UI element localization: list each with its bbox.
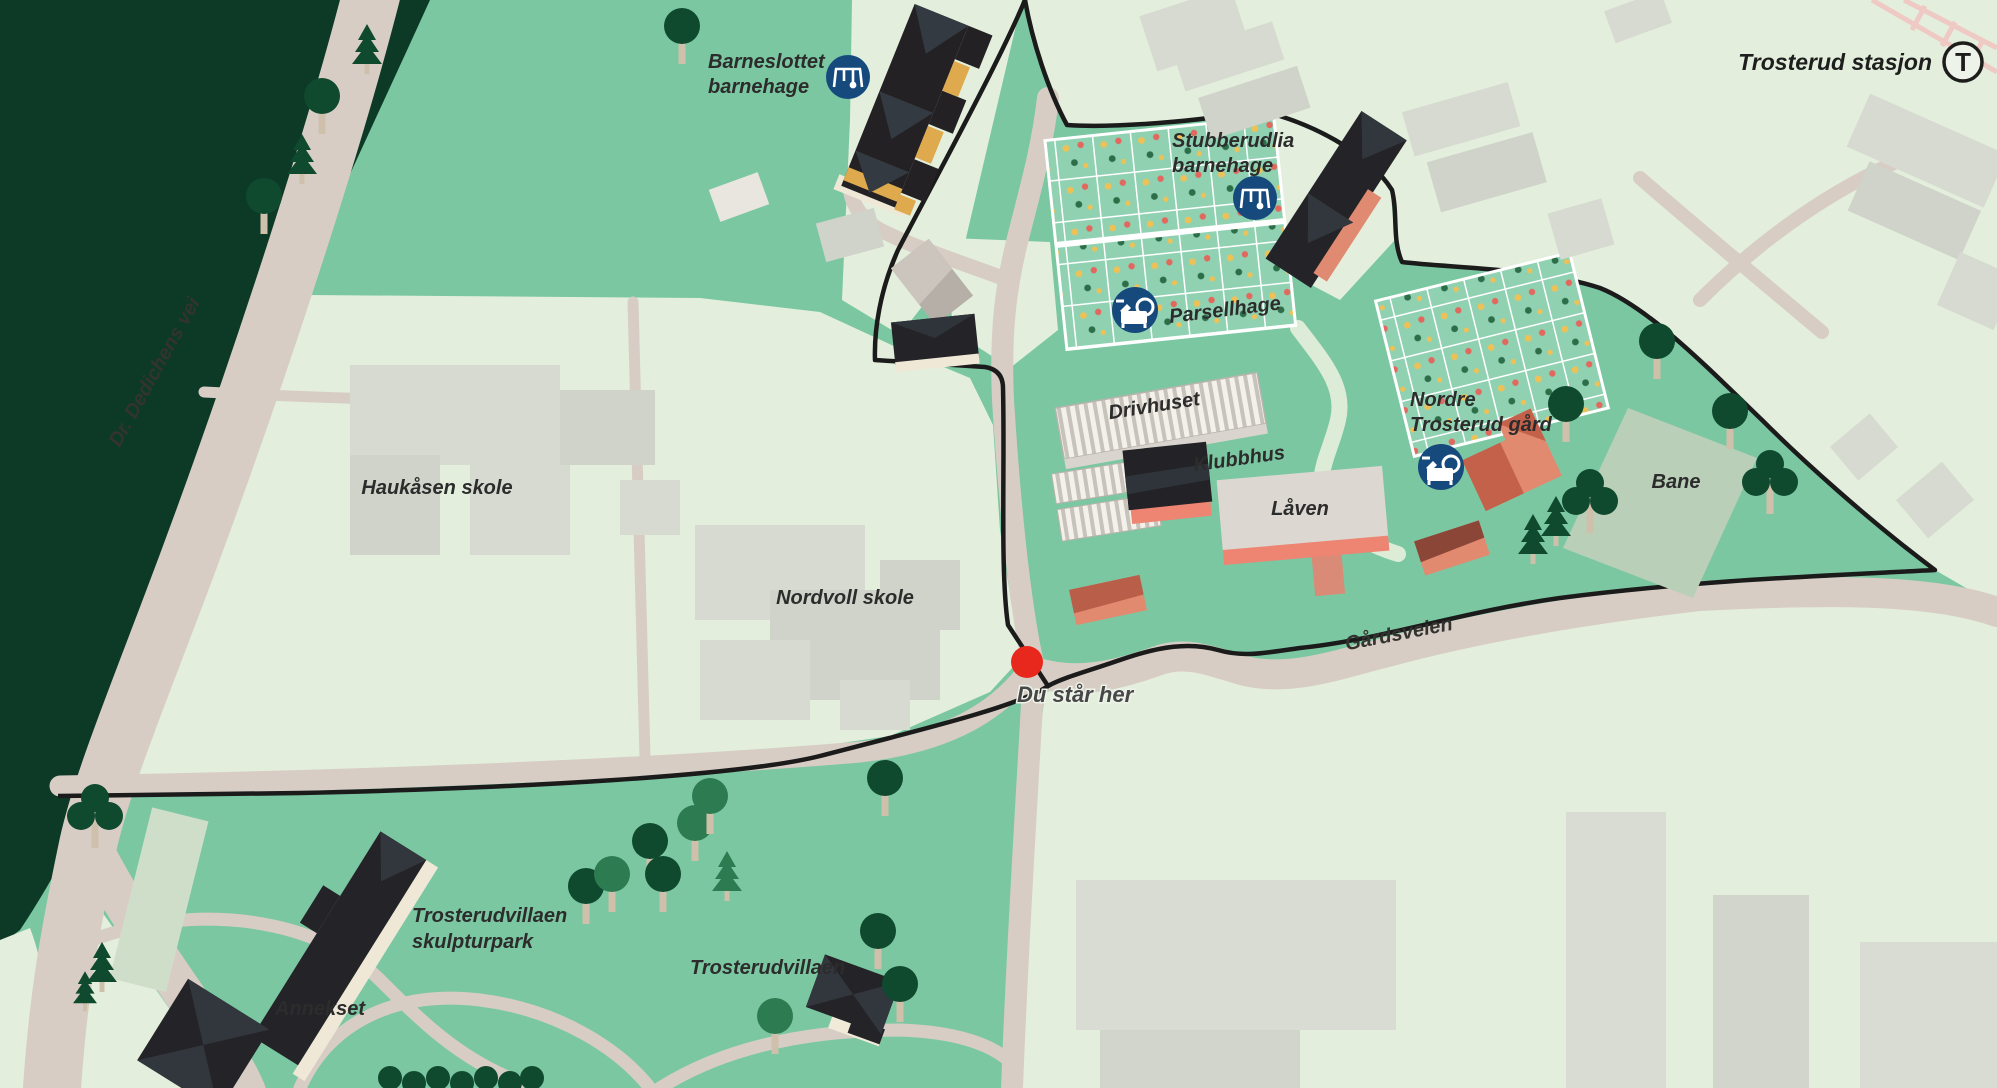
label-nordre-line1: Nordre (1410, 389, 1476, 411)
label-annekset: Annekset (274, 998, 366, 1020)
label-barneslottet-line2: barnehage (708, 76, 809, 98)
metro-T-icon: T (1944, 43, 1982, 81)
label-laaven: Låven (1271, 497, 1329, 520)
label-trosterud-stasjon: Trosterud stasjon (1738, 49, 1932, 75)
label-barneslottet-line1: Barneslottet (708, 51, 826, 73)
building-black-small (891, 314, 980, 373)
you-are-here-dot (1011, 646, 1043, 678)
park-map: T Barneslottet barnehage Trosterud stasj… (0, 0, 1997, 1088)
label-nordvoll-skole: Nordvoll skole (776, 587, 914, 609)
label-stubberudlia-line1: Stubberudlia (1172, 130, 1294, 152)
label-skulpturpark-line1: Trosterudvillaen (412, 905, 567, 927)
label-nordre-line2: Trosterud gård (1410, 413, 1553, 436)
metro-t-letter: T (1955, 47, 1971, 77)
playground-icon (1233, 176, 1277, 220)
label-haukaasen-skole: Haukåsen skole (361, 476, 512, 499)
playground-icon (826, 55, 870, 99)
map-svg: T Barneslottet barnehage Trosterud stasj… (0, 0, 1997, 1088)
watering-can-icon (1112, 287, 1158, 333)
label-du-staar-her: Du står her (1017, 682, 1135, 707)
watering-can-icon (1418, 444, 1464, 490)
label-trosterudvillaen: Trosterudvillaen (690, 957, 845, 979)
label-stubberudlia-line2: barnehage (1172, 155, 1273, 177)
label-skulpturpark-line2: skulpturpark (412, 931, 534, 953)
label-bane: Bane (1652, 471, 1701, 493)
